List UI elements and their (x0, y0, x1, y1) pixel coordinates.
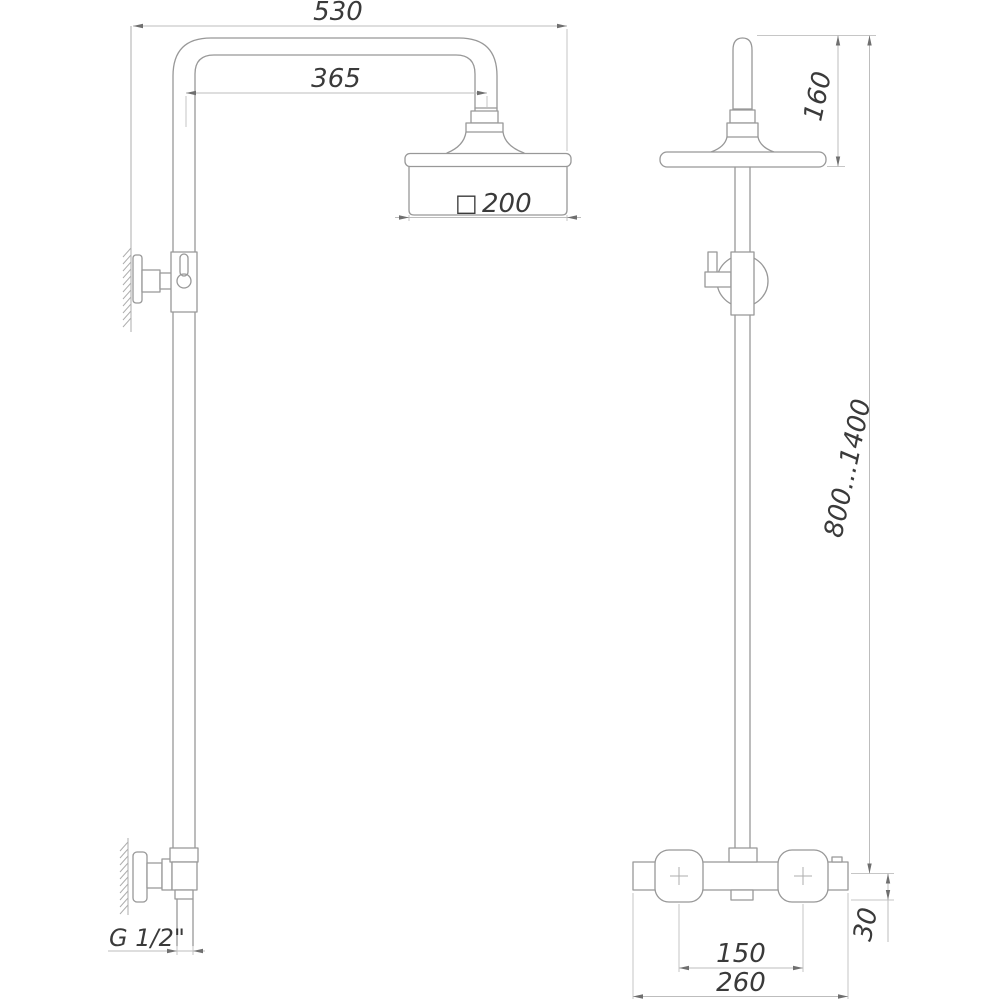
mixer-spout (731, 890, 753, 900)
elbow-body (172, 862, 197, 890)
head-collar (730, 110, 755, 123)
upper-wall-section (123, 26, 131, 332)
arm-end-front (711, 38, 774, 152)
wall-hatching (123, 248, 131, 327)
dim-label-height-range: 800...1400 (819, 396, 878, 540)
arrowhead (477, 91, 487, 95)
arrowhead (886, 890, 890, 900)
dim-label-365: 365 (311, 64, 361, 94)
riser-connection-nut (729, 848, 757, 862)
mixer-body-front (633, 848, 848, 902)
dim-label-160: 160 (798, 69, 838, 124)
extension-lines (186, 96, 487, 127)
slider-block (171, 252, 197, 312)
elbow-arm (147, 863, 162, 888)
arrowhead (567, 215, 577, 219)
arrowhead (186, 91, 196, 95)
dim-column-height: 800...1400 (819, 36, 894, 874)
riser-pipe-lower (735, 315, 750, 848)
head-cap-rim (405, 154, 571, 167)
dim-label-260: 260 (716, 968, 766, 998)
valve-handle (705, 272, 731, 287)
dim-label-30: 30 (848, 905, 884, 944)
mixer-side-tab (832, 857, 842, 862)
square-symbol-icon: □ (455, 189, 478, 217)
dim-arm-reach: 365 (186, 64, 487, 127)
dim-label-150: 150 (716, 939, 766, 969)
riser-pipe-upper (735, 167, 750, 252)
front-view: 160 800...1400 30 150 (633, 36, 894, 1000)
head-trumpet (711, 137, 774, 152)
arrowhead (633, 994, 643, 998)
head-flange (466, 123, 503, 132)
arrowhead (793, 966, 803, 970)
arrowhead (836, 157, 840, 167)
technical-drawing-page: 530 365 □ 200 G 1/2" (0, 0, 1000, 1000)
arrowhead (838, 994, 848, 998)
elbow-collar (170, 848, 198, 862)
wall-plate (133, 255, 142, 303)
arm-end-pipe (733, 38, 752, 110)
elbow-nut (162, 859, 172, 890)
elbow-outlet (175, 890, 193, 899)
arrowhead (886, 874, 890, 884)
head-trumpet (447, 132, 524, 153)
valve-handle-stub (708, 252, 717, 273)
head-collar (471, 111, 498, 123)
arrowhead (557, 24, 567, 28)
arrowhead (867, 36, 871, 46)
shower-system-drawing: 530 365 □ 200 G 1/2" (0, 0, 1000, 1000)
valve-block (731, 252, 754, 315)
wall-hatching (120, 842, 128, 914)
side-view: 530 365 □ 200 G 1/2" (108, 0, 581, 955)
dim-handle-centers: 150 (679, 904, 803, 972)
arrowhead (679, 966, 689, 970)
arrowhead (133, 24, 143, 28)
upper-wall-bracket (133, 252, 197, 312)
wall-plate (133, 852, 147, 902)
dim-inlet-thread: G 1/2" (108, 924, 205, 955)
bracket-neck (160, 273, 172, 289)
arrowhead (867, 864, 871, 874)
diverter-valve-front (705, 252, 768, 315)
lower-wall-section (120, 838, 128, 915)
arrowhead (193, 949, 203, 953)
dim-label-530: 530 (313, 0, 363, 27)
bracket-arm (142, 270, 160, 292)
dim-label-200: 200 (482, 189, 532, 219)
arrowhead (836, 36, 840, 46)
head-flange (727, 123, 758, 137)
shower-head-disc (660, 152, 826, 167)
dim-label-thread: G 1/2" (109, 924, 185, 952)
arrowhead (399, 215, 409, 219)
dim-head-height: 160 (757, 36, 876, 167)
dim-mixer-body-height: 30 (848, 874, 894, 944)
